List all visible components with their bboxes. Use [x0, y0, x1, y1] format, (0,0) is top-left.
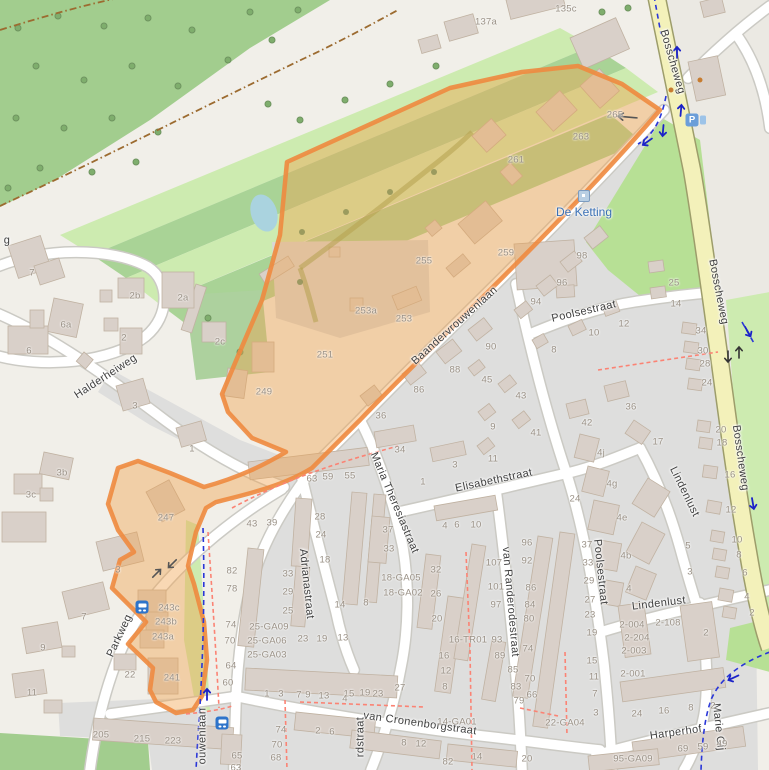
poi-mini-icon: [700, 116, 706, 125]
map-canvas[interactable]: P De Ketting BosschewegBosschewegBossche…: [0, 0, 769, 770]
entrance-dot: [698, 78, 703, 83]
bus-stop-icon: [136, 601, 149, 614]
de-ketting-poi-icon: [578, 190, 590, 202]
entrance-dot: [669, 88, 674, 93]
map-base: [0, 0, 769, 770]
parking-icon: P: [686, 114, 699, 127]
bus-stop-icon: [216, 717, 229, 730]
